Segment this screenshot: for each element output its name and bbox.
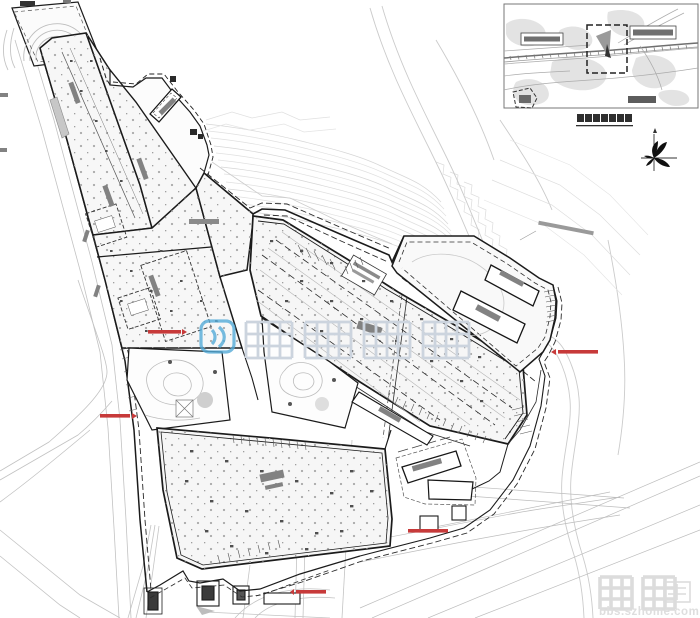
svg-text:bbs.szhome.com: bbs.szhome.com [599, 606, 699, 618]
